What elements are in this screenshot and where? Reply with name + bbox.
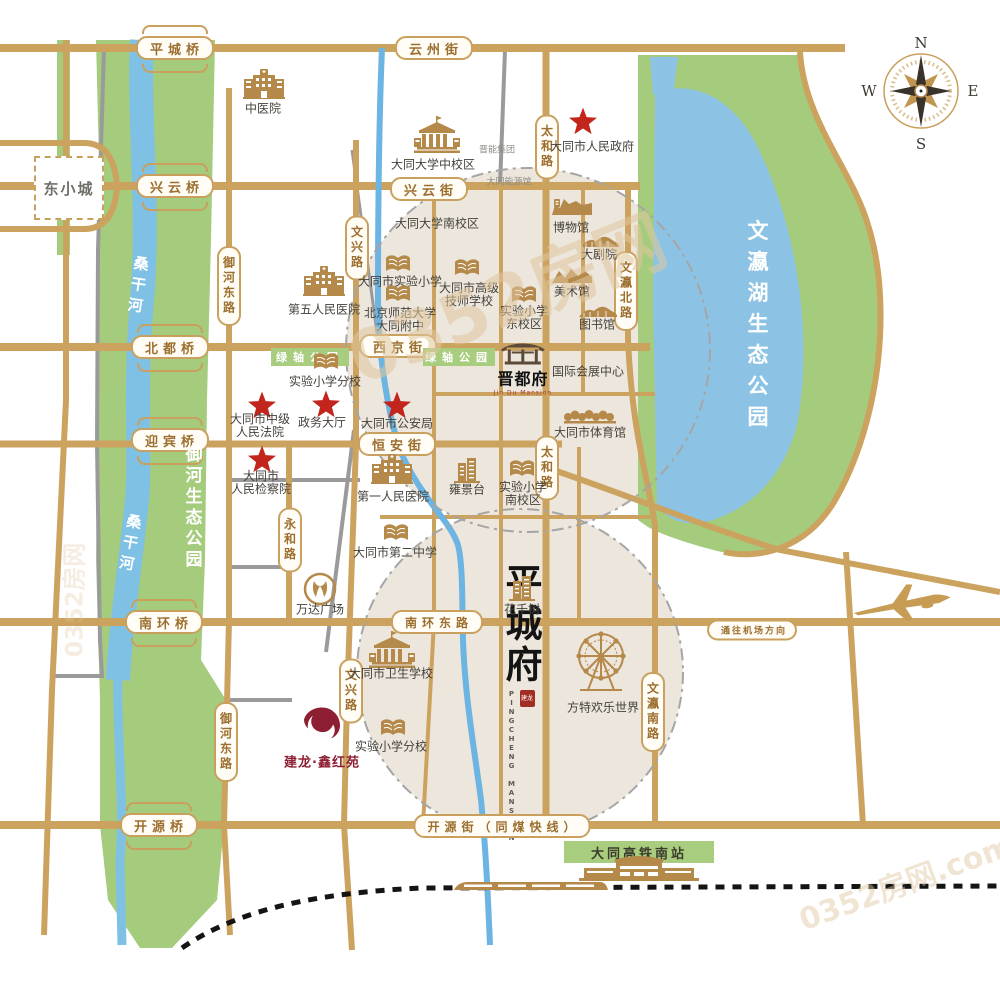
intl-expo-center-label: 国际会展中心 — [552, 366, 624, 379]
bridge-kaiyuan-label: 开源桥 — [120, 813, 198, 837]
sanggan-river-label-north: 桑干河 — [123, 254, 153, 319]
road-wenyingnan: 文瀛南路 — [641, 672, 665, 752]
public-security-bureau-label: 大同市公安局 — [361, 418, 433, 431]
datong-univ-mid-campus-univ-icon — [414, 116, 460, 154]
watermark-left: 0352房网 — [55, 543, 90, 658]
bridge-nanhuan-label: 南环桥 — [125, 610, 203, 634]
exp-primary-branch-south-label: 实验小学分校 — [355, 741, 427, 754]
exp-primary-south-campus-book-icon — [508, 459, 536, 479]
exp-primary-south-campus-label: 实验小学南校区 — [499, 481, 547, 507]
bridge-beidu-label: 北都桥 — [131, 335, 209, 359]
compass-w: W — [861, 82, 876, 100]
no2-middle-school-label: 大同市第二中学 — [353, 547, 437, 560]
first-peoples-hospital-hospital-icon — [371, 452, 413, 486]
tcm-hospital-label-line1: 中医院 — [245, 103, 281, 116]
peoples-procuratorate-label-line2: 人民检察院 — [231, 483, 291, 496]
bridge-bracket-bottom — [142, 64, 208, 73]
jianlong-swirl-icon — [302, 706, 342, 750]
health-school-label-line1: 大同市卫生学校 — [349, 668, 433, 681]
dongxiaocheng-box: 东小城 — [34, 156, 104, 220]
intermediate-court-label: 大同市中级人民法院 — [230, 413, 290, 439]
datong-univ-mid-campus-label-line1: 大同大学中校区 — [391, 159, 475, 172]
labels-layer: N E S W 东小城 平城府 PINGCHENG MANSION 建龙 晋都府… — [0, 0, 1000, 1000]
bridge-pingcheng: 平城桥 — [139, 37, 211, 59]
no2-middle-school-book-icon — [382, 523, 410, 543]
yongjingtai-label-line1: 雍景台 — [449, 484, 485, 497]
jinneng-group: 晋能集团 — [479, 143, 515, 156]
health-school-univ-icon — [369, 631, 415, 669]
bridge-bracket-top — [131, 599, 197, 608]
bridge-bracket-bottom — [126, 841, 192, 850]
exp-primary-branch-south-label-line1: 实验小学分校 — [355, 741, 427, 754]
city-government-star-icon — [569, 108, 597, 135]
airplane-plane-icon — [851, 579, 955, 629]
datong-energy-hall: 大同能源馆 — [486, 175, 531, 188]
library-label-line1: 图书馆 — [579, 319, 615, 332]
jindufu-name-en: Jin Du Mansion — [494, 390, 552, 397]
bridge-bracket-top — [126, 802, 192, 811]
road-wenxing-n: 文兴路 — [345, 216, 369, 281]
city-gymnasium-label-line1: 大同市体育馆 — [554, 427, 626, 440]
wanda-plaza-label-line1: 万达广场 — [296, 604, 344, 617]
street-xingyun: 兴云街 — [390, 177, 468, 201]
library-label: 图书馆 — [579, 319, 615, 332]
street-yunzhou: 云州街 — [395, 36, 473, 60]
jindufu-name: 晋都府 — [497, 366, 548, 390]
city-gymnasium-label: 大同市体育馆 — [554, 427, 626, 440]
location-map: { "compass": {"n":"N","e":"E","s":"S","w… — [0, 0, 1000, 1000]
huaqianshu-label: 花千树 — [504, 604, 540, 617]
tcm-hospital-label: 中医院 — [245, 103, 281, 116]
compass-e: E — [968, 82, 979, 100]
city-government-label-line1: 大同市人民政府 — [550, 141, 634, 154]
bridge-bracket-top — [137, 417, 203, 426]
intermediate-court-label-line2: 人民法院 — [230, 426, 290, 439]
yuhe-park-label: 御河生态公园 — [180, 445, 205, 571]
government-hall-star-icon — [312, 391, 340, 418]
datong-univ-south-campus-label: 大同大学南校区 — [395, 218, 479, 231]
street-kaiyuan: 开源街（同煤快线） — [413, 814, 590, 838]
government-hall-label: 政务大厅 — [298, 417, 346, 430]
fangte-happy-world-label: 方特欢乐世界 — [567, 702, 639, 715]
bridge-bracket-top — [142, 25, 208, 34]
bridge-nanhuan: 南环桥 — [128, 611, 200, 633]
city-government-label: 大同市人民政府 — [550, 141, 634, 154]
first-peoples-hospital-label: 第一人民医院 — [357, 491, 429, 504]
exp-primary-branch-north-label-line1: 实验小学分校 — [289, 376, 361, 389]
tcm-hospital-hospital-icon — [243, 67, 285, 101]
no2-middle-school-label-line1: 大同市第二中学 — [353, 547, 437, 560]
dongxiaocheng-label: 东小城 — [43, 178, 94, 199]
datong-univ-south-campus-label-line1: 大同大学南校区 — [395, 218, 479, 231]
intl-expo-center-label-line1: 国际会展中心 — [552, 366, 624, 379]
watermark-bottom-right: 0352房网.com — [792, 821, 1000, 939]
road-yonghe: 永和路 — [278, 508, 302, 573]
fangte-happy-world-ferris-icon — [566, 630, 636, 696]
wenying-lake-park-label: 文瀛湖生态公园 — [742, 220, 772, 437]
peoples-procuratorate-label: 大同市人民检察院 — [231, 470, 291, 496]
street-airport: 通往机场方向 — [707, 620, 797, 641]
bridge-beidu: 北都桥 — [134, 336, 206, 358]
compass-n: N — [914, 34, 927, 52]
exp-primary-branch-north-book-icon — [312, 352, 340, 372]
city-gymnasium-trees-icon — [564, 409, 616, 425]
hsr-train-train-icon — [450, 880, 610, 892]
exp-primary-south-campus-label-line2: 南校区 — [499, 494, 547, 507]
fifth-peoples-hospital-hospital-icon — [303, 264, 345, 298]
road-yuhedong-s: 御河东路 — [214, 702, 238, 782]
yongjingtai-label: 雍景台 — [449, 484, 485, 497]
government-hall-label-line1: 政务大厅 — [298, 417, 346, 430]
bridge-bracket-bottom — [131, 638, 197, 647]
exp-primary-branch-north-label: 实验小学分校 — [289, 376, 361, 389]
compass-s: S — [916, 135, 926, 153]
bridge-bracket-bottom — [137, 363, 203, 372]
bridge-xingyun: 兴云桥 — [139, 175, 211, 197]
exp-primary-school-book-icon — [384, 254, 412, 274]
bridge-kaiyuan: 开源桥 — [123, 814, 195, 836]
bridge-bracket-top — [137, 324, 203, 333]
huaqianshu-label-line1: 花千树 — [504, 604, 540, 617]
wanda-plaza-label: 万达广场 — [296, 604, 344, 617]
exp-primary-branch-south-book-icon — [379, 718, 407, 738]
bridge-xingyun-label: 兴云桥 — [136, 174, 214, 198]
jianlong-name: 建龙·鑫红苑 — [284, 752, 360, 771]
bridge-bracket-bottom — [142, 202, 208, 211]
hsr-station-building-station-icon — [574, 852, 704, 882]
bridge-bracket-top — [142, 163, 208, 172]
first-peoples-hospital-label-line1: 第一人民医院 — [357, 491, 429, 504]
yongjingtai-tower-icon — [454, 457, 480, 483]
public-security-bureau-label-line1: 大同市公安局 — [361, 418, 433, 431]
fangte-happy-world-label-line1: 方特欢乐世界 — [567, 702, 639, 715]
datong-univ-mid-campus-label: 大同大学中校区 — [391, 159, 475, 172]
road-yuhedong-n: 御河东路 — [217, 246, 241, 326]
project-seal: 建龙 — [520, 690, 535, 707]
bridge-pingcheng-label: 平城桥 — [136, 36, 214, 60]
sanggan-river-label-south: 桑干河 — [114, 512, 146, 578]
health-school-label: 大同市卫生学校 — [349, 668, 433, 681]
huaqianshu-tower-icon — [509, 575, 535, 601]
